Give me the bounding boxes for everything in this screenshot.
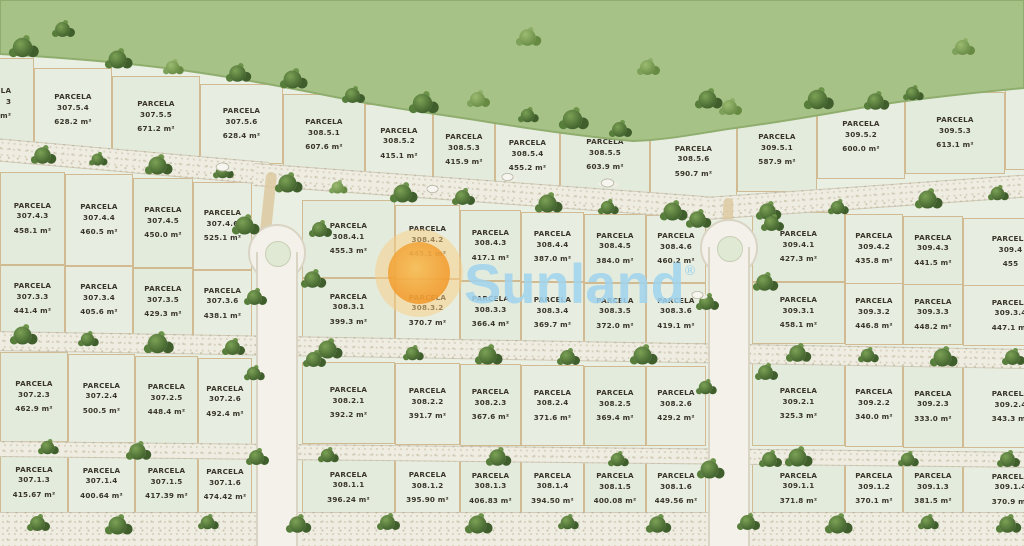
tree-icon bbox=[560, 350, 575, 365]
parcel-area: 458.1 m² bbox=[14, 226, 51, 236]
parcel-309.4.3[interactable]: PARCELA309.4.3441.5 m² bbox=[903, 216, 963, 285]
parcela-word: PARCELA bbox=[914, 233, 951, 243]
parcel-area: 441.5 m² bbox=[914, 258, 951, 268]
parcel-label: PARCELA309.3.3448.2 m² bbox=[914, 297, 951, 332]
parcel-label: PARCELA308.1.2395.90 m² bbox=[406, 470, 449, 505]
parcel-number: 309.4.1 bbox=[783, 240, 815, 250]
parcel-area: 460.5 m² bbox=[80, 227, 117, 237]
parcel-label: PARCELA308.1.4394.50 m² bbox=[531, 471, 574, 506]
greenbelt bbox=[0, 0, 1024, 160]
tree-icon bbox=[489, 449, 506, 466]
parcel-number: 309.4.2 bbox=[858, 242, 890, 252]
tree-icon bbox=[92, 154, 104, 166]
parcel-area: 333.0 m² bbox=[914, 414, 951, 424]
parcel-number: 308.1.3 bbox=[475, 481, 507, 491]
parcel-area: 455 bbox=[1003, 259, 1019, 269]
tree-icon bbox=[229, 65, 246, 82]
parcel-number: 307.2.5 bbox=[151, 393, 183, 403]
tree-icon bbox=[479, 347, 497, 365]
parcel-308.1.1[interactable]: PARCELA308.1.1396.24 m² bbox=[302, 459, 395, 516]
parcel-309.1.1[interactable]: PARCELA309.1.1371.8 m² bbox=[752, 461, 845, 516]
parcela-word: PARCELA bbox=[409, 470, 446, 480]
parcel-label: PARCELA307.1.4400.64 m² bbox=[80, 466, 123, 501]
parcela-word: PARCELA bbox=[914, 297, 951, 307]
parcela-word: PARCELA bbox=[472, 471, 509, 481]
parcel-area: 455.2 m² bbox=[509, 163, 546, 173]
parcela-word: PARCELA bbox=[148, 382, 185, 392]
tree-icon bbox=[808, 90, 828, 110]
parcel-308.2.6[interactable]: PARCELA308.2.6429.2 m² bbox=[646, 366, 706, 446]
tree-icon bbox=[455, 190, 470, 205]
parcel-area: 369.7 m² bbox=[534, 320, 571, 330]
parcel-area: 406.83 m² bbox=[469, 496, 512, 506]
tree-icon bbox=[601, 201, 615, 215]
tree-icon bbox=[664, 203, 682, 221]
parcel-label: PARCELA307.3.5429.3 m² bbox=[144, 284, 181, 319]
parcel-area: 372.0 m² bbox=[596, 321, 633, 331]
street-west bbox=[256, 252, 298, 546]
parcel-area: 438.1 m² bbox=[204, 311, 241, 321]
road-bottom bbox=[0, 512, 1024, 546]
tree-icon bbox=[901, 453, 915, 467]
parcel-label: PARCELA307.1.6474.42 m² bbox=[204, 467, 247, 502]
parcel-number: 309.3.2 bbox=[858, 307, 890, 317]
parcela-word: PARCELA bbox=[780, 471, 817, 481]
parcel-area: 367.6 m² bbox=[472, 412, 509, 422]
parcel-308.1.2[interactable]: PARCELA308.1.2395.90 m² bbox=[395, 460, 460, 516]
tree-icon bbox=[109, 517, 127, 535]
parcel-label: PARCELA309.4.3441.5 m² bbox=[914, 233, 951, 268]
parcel-area: 325.3 m² bbox=[780, 411, 817, 421]
parcel-area: 370.1 m² bbox=[855, 496, 892, 506]
parcela-word: PARCELA bbox=[596, 471, 633, 481]
tree-icon bbox=[470, 92, 485, 107]
registered-mark: ® bbox=[685, 262, 695, 278]
tree-icon bbox=[831, 201, 845, 215]
tree-icon bbox=[30, 516, 45, 531]
parcel-area: 399.3 m² bbox=[330, 317, 367, 327]
parcel-area: 448.2 m² bbox=[914, 322, 951, 332]
tree-icon bbox=[148, 334, 168, 354]
tree-icon bbox=[934, 349, 952, 367]
parcel-area: 492.4 m² bbox=[206, 409, 243, 419]
tree-icon bbox=[380, 515, 395, 530]
tree-icon bbox=[284, 71, 302, 89]
tree-icon bbox=[166, 61, 180, 75]
tree-icon bbox=[304, 271, 321, 288]
parcela-word: PARCELA bbox=[330, 292, 367, 302]
parcel-number: 309.1.1 bbox=[783, 481, 815, 491]
tree-icon bbox=[612, 122, 627, 137]
parcel-map: Sunland® PARCELA33.7 m²PARCELA307.5.4628… bbox=[0, 0, 1024, 546]
parcel-label: PARCELA307.3.6438.1 m² bbox=[204, 286, 241, 321]
parcela-word: PARCELA bbox=[855, 231, 892, 241]
parcel-area: 417.39 m² bbox=[145, 491, 188, 501]
parcel-number: 309.2.2 bbox=[858, 398, 890, 408]
parcel-label: PARCELA308.2.1392.2 m² bbox=[330, 385, 367, 420]
parcela-word: PARCELA bbox=[780, 295, 817, 305]
parcel-number: 307.1.6 bbox=[209, 478, 241, 488]
tree-icon bbox=[225, 340, 240, 355]
parcel-label: PARCELA308.1.6449.56 m² bbox=[655, 471, 698, 506]
tree-icon bbox=[13, 38, 33, 58]
tree-icon bbox=[906, 87, 920, 101]
parcela-word: PARCELA bbox=[80, 202, 117, 212]
parcel-number: 308.1.4 bbox=[537, 481, 569, 491]
parcel-number: 307.2.6 bbox=[209, 394, 241, 404]
tree-icon bbox=[539, 195, 557, 213]
parcel-number: 308.1.6 bbox=[660, 482, 692, 492]
parcela-word: PARCELA bbox=[144, 284, 181, 294]
parcel-label: PARCELA307.3.4405.6 m² bbox=[80, 282, 117, 317]
parcel-area: 448.4 m² bbox=[148, 407, 185, 417]
parcela-word: PARCELA bbox=[534, 388, 571, 398]
tree-icon bbox=[247, 290, 262, 305]
parcela-word: PARCELA bbox=[83, 381, 120, 391]
parcel-308.2.1[interactable]: PARCELA308.2.1392.2 m² bbox=[302, 362, 395, 444]
tree-icon bbox=[81, 333, 95, 347]
parcela-word: PARCELA bbox=[780, 229, 817, 239]
parcela-word: PARCELA bbox=[206, 467, 243, 477]
parcel-area: 427.3 m² bbox=[780, 254, 817, 264]
parcela-word: PARCELA bbox=[657, 471, 694, 481]
parcel-area: 400.08 m² bbox=[594, 496, 637, 506]
parcela-word: PARCELA bbox=[657, 388, 694, 398]
tree-icon bbox=[722, 100, 737, 115]
parcel-number: 309.3.4 bbox=[995, 308, 1024, 318]
parcel-label: PARCELA307.2.5448.4 m² bbox=[148, 382, 185, 417]
parcel-label: PARCELA308.1.3406.83 m² bbox=[469, 471, 512, 506]
parcel-307.3.5[interactable]: PARCELA307.3.5429.3 m² bbox=[133, 268, 193, 336]
parcel-area: 371.8 m² bbox=[780, 496, 817, 506]
parcel-309.3.1[interactable]: PARCELA309.3.1458.1 m² bbox=[752, 282, 845, 344]
parcela-word: PARCELA bbox=[780, 386, 817, 396]
parcela-word: PARCELA bbox=[992, 472, 1024, 482]
parcel-308.1.3[interactable]: PARCELA308.1.3406.83 m² bbox=[460, 461, 521, 516]
parcela-word: PARCELA bbox=[148, 466, 185, 476]
parcel-number: 307.1.4 bbox=[86, 476, 118, 486]
parcela-word: PARCELA bbox=[204, 286, 241, 296]
parcel-309.2.3[interactable]: PARCELA309.2.3333.0 m² bbox=[903, 365, 963, 448]
tree-icon bbox=[34, 147, 51, 164]
parcel-307.3.6[interactable]: PARCELA307.3.6438.1 m² bbox=[193, 270, 252, 337]
parcel-number: 307.2.4 bbox=[86, 391, 118, 401]
parcel-number: 307.3.3 bbox=[17, 292, 49, 302]
tree-icon bbox=[332, 182, 344, 194]
parcel-number: 309.3.1 bbox=[783, 306, 815, 316]
parcel-308.2.2[interactable]: PARCELA308.2.2391.7 m² bbox=[395, 363, 460, 445]
parcela-word: PARCELA bbox=[14, 281, 51, 291]
parcel-308.4.1[interactable]: PARCELA308.4.1455.3 m² bbox=[302, 200, 395, 278]
tree-icon bbox=[469, 516, 487, 534]
parcela-word: PARCELA bbox=[144, 205, 181, 215]
parcel-area: 392.2 m² bbox=[330, 410, 367, 420]
parcel-309.4.2[interactable]: PARCELA309.4.2435.8 m² bbox=[845, 214, 903, 284]
parcela-word: PARCELA bbox=[992, 389, 1024, 399]
parcel-area: 343.3 m² bbox=[992, 414, 1024, 424]
rock-icon bbox=[427, 185, 439, 193]
parcel-label: PARCELA309.1.4370.9 m² bbox=[992, 472, 1024, 507]
parcel-label: PARCELA309.1.3381.5 m² bbox=[914, 471, 951, 506]
tree-icon bbox=[249, 450, 264, 465]
parcel-308.1.4[interactable]: PARCELA308.1.4394.50 m² bbox=[521, 461, 584, 516]
parcela-word: PARCELA bbox=[472, 387, 509, 397]
parcela-word: PARCELA bbox=[855, 296, 892, 306]
parcel-309.1.2[interactable]: PARCELA309.1.2370.1 m² bbox=[845, 462, 903, 516]
parcel-307.2.4[interactable]: PARCELA307.2.4500.5 m² bbox=[68, 354, 135, 443]
tree-icon bbox=[611, 453, 625, 467]
parcel-area: 458.1 m² bbox=[780, 320, 817, 330]
parcel-label: PARCELA308.1.1396.24 m² bbox=[327, 470, 370, 505]
tree-icon bbox=[789, 345, 806, 362]
tree-icon bbox=[699, 381, 713, 395]
parcel-area: 449.56 m² bbox=[655, 496, 698, 506]
parcel-309.1.3[interactable]: PARCELA309.1.3381.5 m² bbox=[903, 462, 963, 516]
parcel-label: PARCELA308.2.2391.7 m² bbox=[409, 386, 446, 421]
parcel-number: 308.2.2 bbox=[412, 397, 444, 407]
parcel-307.2.6[interactable]: PARCELA307.2.6492.4 m² bbox=[198, 358, 252, 445]
parcel-number: 308.2.6 bbox=[660, 399, 692, 409]
parcel-number: 308.2.1 bbox=[333, 396, 365, 406]
parcel-area: 371.6 m² bbox=[534, 413, 571, 423]
parcel-307.3.3[interactable]: PARCELA307.3.3441.4 m² bbox=[0, 265, 65, 333]
parcela-word: PARCELA bbox=[855, 471, 892, 481]
parcela-word: PARCELA bbox=[206, 384, 243, 394]
parcel-307.2.5[interactable]: PARCELA307.2.5448.4 m² bbox=[135, 356, 198, 444]
parcela-word: PARCELA bbox=[80, 282, 117, 292]
watermark-brand: Sunland® bbox=[464, 234, 695, 320]
parcel-area: 447.1 m² bbox=[992, 323, 1024, 333]
parcel-label: PARCELA309.2.1325.3 m² bbox=[780, 386, 817, 421]
parcel-area: 394.50 m² bbox=[531, 496, 574, 506]
parcel-area: 525.1 m² bbox=[204, 233, 241, 243]
parcel-area: 395.90 m² bbox=[406, 495, 449, 505]
rock-icon bbox=[216, 163, 230, 172]
parcel-number: 307.2.3 bbox=[18, 390, 50, 400]
tree-icon bbox=[561, 516, 575, 530]
parcel-308.2.5[interactable]: PARCELA308.2.5369.4 m² bbox=[584, 366, 646, 446]
parcel-309.3.4[interactable]: PARCELA309.3.4447.1 m² bbox=[963, 285, 1024, 346]
watermark: Sunland® bbox=[388, 234, 695, 320]
parcela-word: PARCELA bbox=[15, 379, 52, 389]
parcel-308.3.1[interactable]: PARCELA308.3.1399.3 m² bbox=[302, 278, 395, 341]
parcela-word: PARCELA bbox=[409, 386, 446, 396]
tree-icon bbox=[289, 516, 306, 533]
parcel-area: 369.4 m² bbox=[596, 413, 633, 423]
tree-icon bbox=[319, 341, 337, 359]
parcel-area: 429.3 m² bbox=[144, 309, 181, 319]
tree-icon bbox=[758, 365, 773, 380]
parcel-number: 308.2.4 bbox=[537, 398, 569, 408]
tree-icon bbox=[129, 443, 146, 460]
parcel-label: PARCELA309.2.2340.0 m² bbox=[855, 387, 892, 422]
parcel-309.2.4[interactable]: PARCELA309.2.4343.3 m² bbox=[963, 366, 1024, 448]
parcela-word: PARCELA bbox=[330, 470, 367, 480]
tree-icon bbox=[921, 516, 935, 530]
tree-icon bbox=[955, 40, 970, 55]
parcel-label: PARCELA308.2.5369.4 m² bbox=[596, 388, 633, 423]
parcel-number: 308.4.1 bbox=[333, 232, 365, 242]
tree-icon bbox=[999, 516, 1016, 533]
parcel-label: PARCELA308.4.1455.3 m² bbox=[330, 221, 367, 256]
tree-icon bbox=[764, 216, 779, 231]
street-east bbox=[708, 247, 750, 546]
parcel-308.1.5[interactable]: PARCELA308.1.5400.08 m² bbox=[584, 462, 646, 516]
parcel-area: 419.1 m² bbox=[657, 321, 694, 331]
parcel-number: 309.2.1 bbox=[783, 397, 815, 407]
parcela-word: PARCELA bbox=[914, 389, 951, 399]
parcel-label: PARCELA307.3.3441.4 m² bbox=[14, 281, 51, 316]
tree-icon bbox=[109, 51, 127, 69]
parcel-label: PARCELA307.2.6492.4 m² bbox=[206, 384, 243, 419]
parcel-number: 307.4.4 bbox=[83, 213, 115, 223]
parcel-area: 340.0 m² bbox=[855, 412, 892, 422]
parcel-307.1.5[interactable]: PARCELA307.1.5417.39 m² bbox=[135, 453, 198, 515]
tree-icon bbox=[991, 187, 1005, 201]
parcel-number: 307.4.6 bbox=[207, 219, 239, 229]
parcel-number: 309.1.3 bbox=[917, 482, 949, 492]
parcel-area: 435.8 m² bbox=[855, 256, 892, 266]
tree-icon bbox=[689, 211, 706, 228]
parcel-number: 307.3.5 bbox=[147, 295, 179, 305]
parcel-label: PARCELA309.3.2446.8 m² bbox=[855, 296, 892, 331]
parcel-label: PARCELA307.2.3462.9 m² bbox=[15, 379, 52, 414]
rock-icon bbox=[502, 173, 514, 181]
parcel-label: PARCELA307.4.4460.5 m² bbox=[80, 202, 117, 237]
parcel-label: PARCELA308.2.6429.2 m² bbox=[657, 388, 694, 423]
parcel-number: 308.1.1 bbox=[333, 480, 365, 490]
tree-icon bbox=[789, 449, 807, 467]
parcel-309.3.2[interactable]: PARCELA309.3.2446.8 m² bbox=[845, 283, 903, 345]
parcel-308.2.4[interactable]: PARCELA308.2.4371.6 m² bbox=[521, 365, 584, 446]
parcel-label: PARCELA308.1.5400.08 m² bbox=[594, 471, 637, 506]
parcela-word: PARCELA bbox=[855, 387, 892, 397]
tree-icon bbox=[201, 516, 215, 530]
parcel-area: 590.7 m² bbox=[675, 169, 712, 179]
tree-icon bbox=[762, 452, 777, 467]
tree-icon bbox=[756, 274, 773, 291]
parcel-309.1.4[interactable]: PARCELA309.1.4370.9 m² bbox=[963, 463, 1024, 516]
parcel-label: PARCELA307.1.3415.67 m² bbox=[13, 465, 56, 500]
parcel-area: 381.5 m² bbox=[914, 496, 951, 506]
parcel-307.3.4[interactable]: PARCELA307.3.4405.6 m² bbox=[65, 266, 133, 334]
parcel-label: PARCELA309.2.3333.0 m² bbox=[914, 389, 951, 424]
tree-icon bbox=[519, 29, 536, 46]
parcel-number: 308.1.5 bbox=[599, 482, 631, 492]
parcel-308.1.6[interactable]: PARCELA308.1.6449.56 m² bbox=[646, 462, 706, 516]
tree-icon bbox=[306, 352, 321, 367]
parcel-label: PARCELA309.1.1371.8 m² bbox=[780, 471, 817, 506]
parcela-word: PARCELA bbox=[15, 465, 52, 475]
parcel-307.1.4[interactable]: PARCELA307.1.4400.64 m² bbox=[68, 452, 135, 515]
parcel-label: PARCELA307.1.5417.39 m² bbox=[145, 466, 188, 501]
parcel-number: 308.2.5 bbox=[599, 399, 631, 409]
parcel-number: 307.4.5 bbox=[147, 216, 179, 226]
parcel-area: 441.4 m² bbox=[14, 306, 51, 316]
parcela-word: PARCELA bbox=[596, 388, 633, 398]
parcel-number: 309.4 bbox=[999, 245, 1023, 255]
parcel-309.2.2[interactable]: PARCELA309.2.2340.0 m² bbox=[845, 363, 903, 447]
parcel-309.3.3[interactable]: PARCELA309.3.3448.2 m² bbox=[903, 284, 963, 345]
parcel-number: 309.2.3 bbox=[917, 399, 949, 409]
tree-icon bbox=[867, 93, 884, 110]
parcel-area: 429.2 m² bbox=[657, 413, 694, 423]
tree-icon bbox=[640, 60, 655, 75]
tree-icon bbox=[247, 367, 261, 381]
parcel-area: 462.9 m² bbox=[15, 404, 52, 414]
parcela-word: PARCELA bbox=[330, 385, 367, 395]
tree-icon bbox=[861, 349, 875, 363]
parcel-label: PARCELA307.4.3458.1 m² bbox=[14, 201, 51, 236]
parcel-label: PARCELA309.4455 bbox=[992, 234, 1024, 269]
tree-icon bbox=[699, 91, 717, 109]
parcela-word: PARCELA bbox=[992, 298, 1024, 308]
parcel-label: PARCELA309.4.2435.8 m² bbox=[855, 231, 892, 266]
parcel-number: 308.1.2 bbox=[412, 481, 444, 491]
tree-icon bbox=[740, 515, 755, 530]
parcel-label: PARCELA307.2.4500.5 m² bbox=[83, 381, 120, 416]
parcel-307.4.5[interactable]: PARCELA307.4.5450.0 m² bbox=[133, 178, 193, 268]
tree-icon bbox=[413, 94, 433, 114]
tree-icon bbox=[406, 347, 420, 361]
parcel-area: 603.9 m² bbox=[586, 162, 623, 172]
parcela-word: PARCELA bbox=[83, 466, 120, 476]
parcela-word: PARCELA bbox=[534, 471, 571, 481]
parcela-word: PARCELA bbox=[992, 234, 1024, 244]
tree-icon bbox=[649, 516, 666, 533]
parcel-309.4[interactable]: PARCELA309.4455 bbox=[963, 218, 1024, 286]
parcel-307.1.3[interactable]: PARCELA307.1.3415.67 m² bbox=[0, 450, 68, 515]
parcel-area: 370.9 m² bbox=[992, 497, 1024, 507]
parcel-area: 405.6 m² bbox=[80, 307, 117, 317]
parcel-number: 308.2.3 bbox=[475, 398, 507, 408]
tree-icon bbox=[14, 327, 32, 345]
parcel-area: 474.42 m² bbox=[204, 492, 247, 502]
parcel-area: 455.3 m² bbox=[330, 246, 367, 256]
tree-icon bbox=[829, 516, 847, 534]
tree-icon bbox=[521, 109, 535, 123]
parcel-area: 391.7 m² bbox=[409, 411, 446, 421]
parcel-number: 308.3.1 bbox=[333, 302, 365, 312]
parcel-label: PARCELA308.2.3367.6 m² bbox=[472, 387, 509, 422]
parcel-area: 450.0 m² bbox=[144, 230, 181, 240]
parcel-307.2.3[interactable]: PARCELA307.2.3462.9 m² bbox=[0, 352, 68, 442]
parcel-area: 446.8 m² bbox=[855, 321, 892, 331]
parcel-307.1.6[interactable]: PARCELA307.1.6474.42 m² bbox=[198, 455, 252, 515]
parcel-label: PARCELA309.1.2370.1 m² bbox=[855, 471, 892, 506]
tree-icon bbox=[634, 347, 652, 365]
parcela-word: PARCELA bbox=[14, 201, 51, 211]
tree-icon bbox=[563, 110, 583, 130]
parcel-number: 307.4.3 bbox=[17, 211, 49, 221]
parcela-word: PARCELA bbox=[330, 221, 367, 231]
parcel-307.4.3[interactable]: PARCELA307.4.3458.1 m² bbox=[0, 172, 65, 265]
tree-icon bbox=[345, 88, 360, 103]
parcel-area: 415.67 m² bbox=[13, 490, 56, 500]
tree-icon bbox=[236, 217, 254, 235]
parcel-number: 307.3.4 bbox=[83, 293, 115, 303]
parcel-307.4.4[interactable]: PARCELA307.4.4460.5 m² bbox=[65, 174, 133, 266]
parcel-label: PARCELA309.4.1427.3 m² bbox=[780, 229, 817, 264]
parcel-308.2.3[interactable]: PARCELA308.2.3367.6 m² bbox=[460, 364, 521, 446]
tree-icon bbox=[919, 191, 937, 209]
tree-icon bbox=[279, 175, 297, 193]
parcel-number: 309.2.4 bbox=[995, 400, 1024, 410]
parcela-word: PARCELA bbox=[204, 208, 241, 218]
parcel-label: PARCELA309.3.4447.1 m² bbox=[992, 298, 1024, 333]
tree-icon bbox=[321, 449, 335, 463]
cul-de-sac-island-west bbox=[265, 241, 291, 267]
